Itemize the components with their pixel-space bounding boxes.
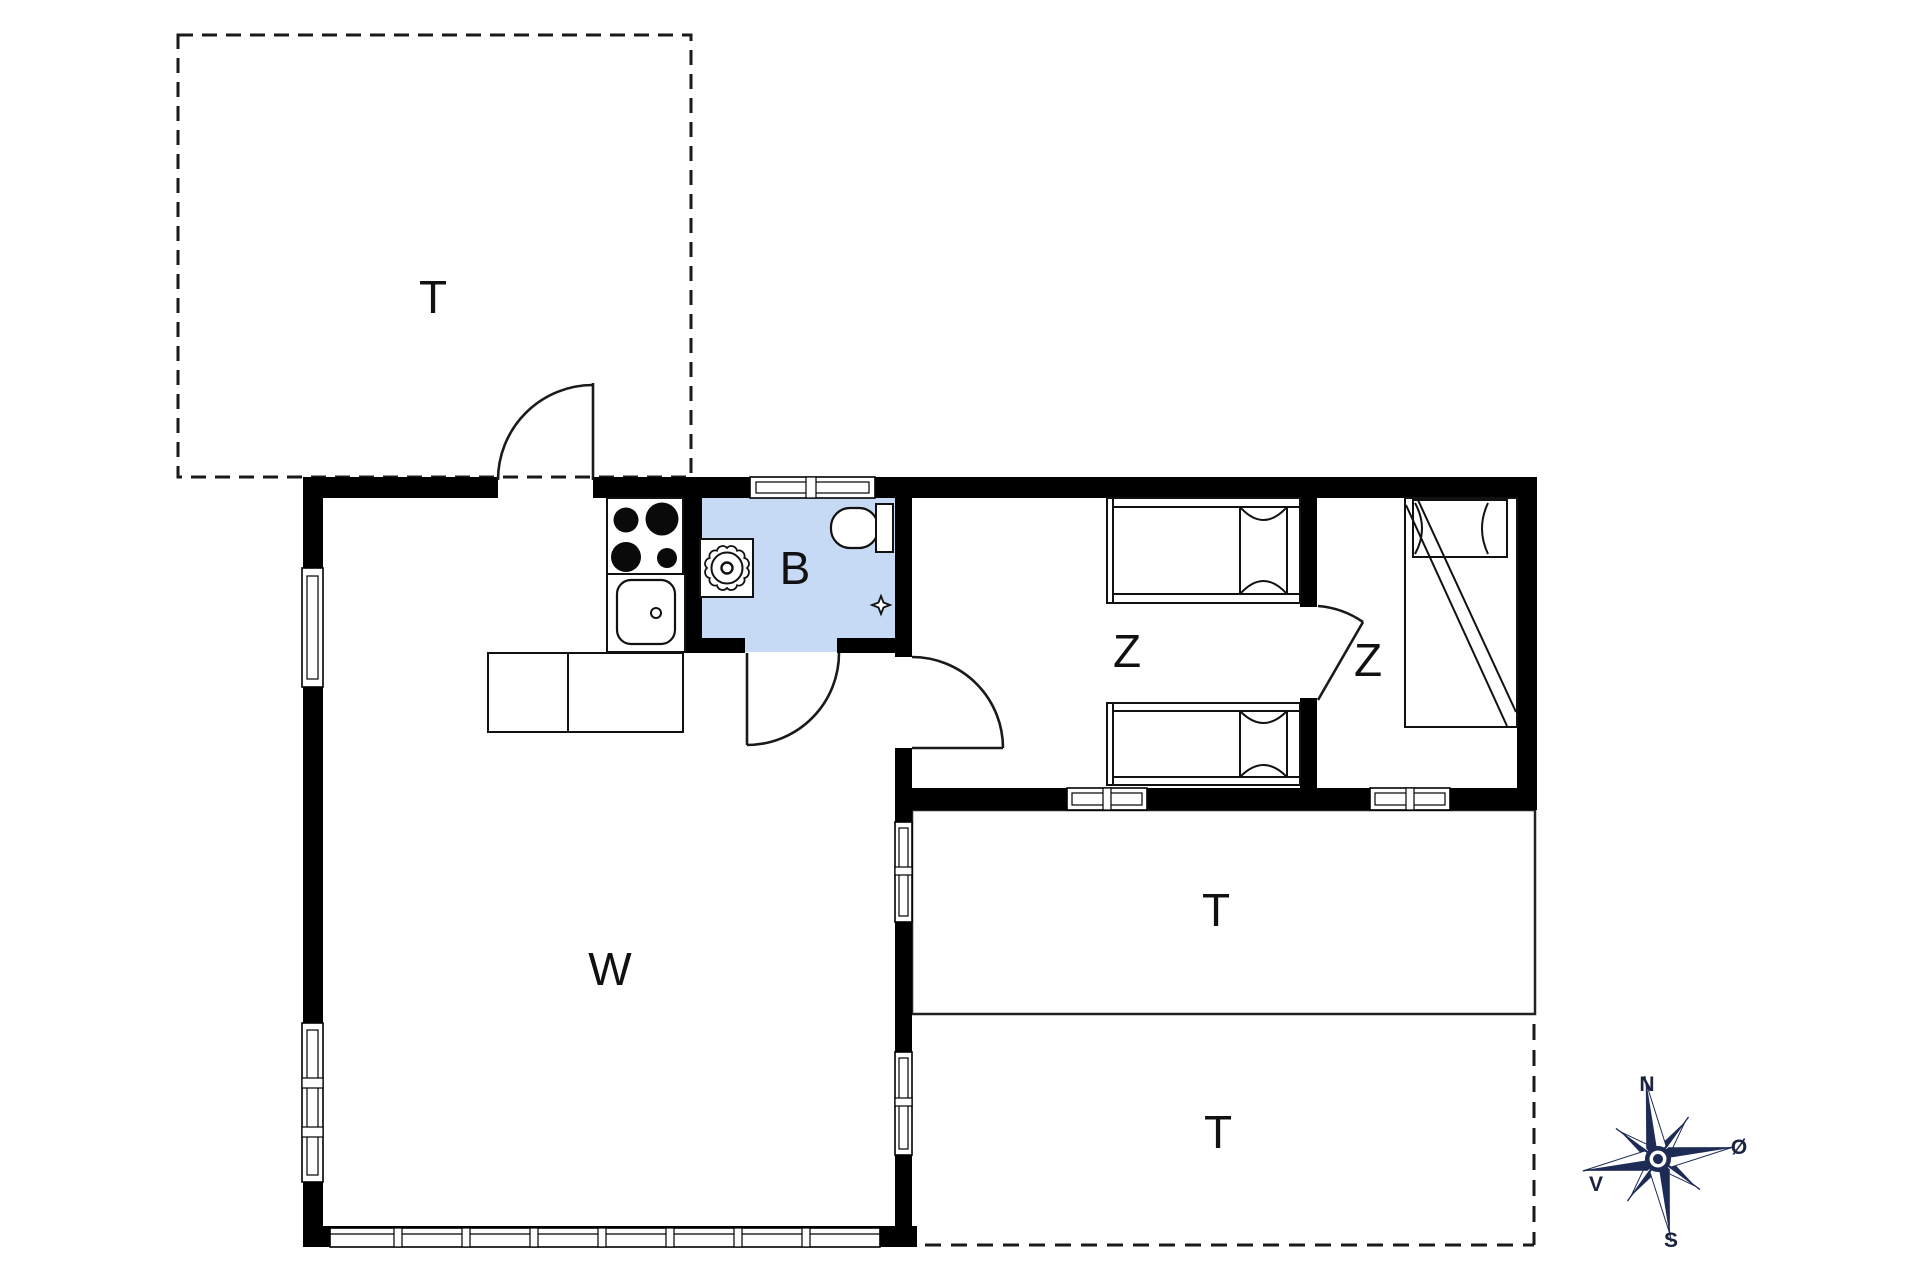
- east-wall-mid: [895, 748, 912, 788]
- north-wall-right: [593, 477, 1537, 498]
- burner-icon: [646, 503, 679, 536]
- kitchen-sink-basin: [617, 580, 675, 644]
- bedroom1-door-arc: [912, 657, 1003, 748]
- kitchen: [488, 498, 685, 732]
- bedroom1-door: [912, 657, 1003, 748]
- bathroom-door: [747, 653, 839, 745]
- bedroom-divider-wall-lower: [1300, 698, 1317, 788]
- bedroom-divider-wall-upper: [1300, 498, 1317, 607]
- compass-south-label: S: [1664, 1229, 1678, 1252]
- compass-rose: N Ø S V: [1570, 1064, 1747, 1254]
- compass-east-label: Ø: [1731, 1136, 1747, 1159]
- burner-icon: [614, 508, 639, 533]
- kitchen-counter: [488, 653, 683, 732]
- room-label-bathroom: B: [780, 542, 811, 594]
- bed-single: [1107, 498, 1300, 603]
- compass-north-label: N: [1639, 1073, 1654, 1096]
- toilet-tank: [876, 504, 893, 552]
- bathroom-south-wall-left: [683, 638, 745, 653]
- bed-single: [1107, 703, 1300, 785]
- east-window-upper: [895, 822, 912, 922]
- room-label-bedroom1: Z: [1113, 625, 1141, 677]
- burner-icon: [657, 548, 677, 568]
- bedroom2-door-arc: [1318, 606, 1363, 622]
- compass-west-label: V: [1589, 1173, 1603, 1196]
- terrace-northwest-outline: [178, 35, 691, 477]
- room-label-bedroom2: Z: [1354, 634, 1382, 686]
- burner-icon: [611, 542, 641, 572]
- south-window-band: [330, 1228, 880, 1247]
- east-wall-upper: [895, 498, 912, 657]
- west-window-lower: [302, 1023, 323, 1182]
- bedroom2-window: [1370, 788, 1450, 810]
- west-window-upper: [302, 568, 323, 687]
- room-label-terrace-middle: T: [1202, 884, 1230, 936]
- bunk-bed: [1405, 498, 1517, 727]
- room-label-terrace-south: T: [1204, 1106, 1232, 1158]
- east-window-lower: [895, 1052, 912, 1155]
- entry-door-arc: [498, 385, 593, 480]
- bathroom-door-arc: [747, 653, 839, 745]
- east-outer-wall: [1517, 477, 1537, 810]
- bedroom1-window: [1067, 788, 1147, 810]
- entry-door: [498, 383, 593, 480]
- north-wall-left: [303, 477, 498, 498]
- bathroom-window: [750, 477, 875, 498]
- toilet-bowl: [831, 508, 878, 548]
- room-label-living-room: W: [588, 943, 632, 995]
- room-label-terrace-nw: T: [419, 271, 447, 323]
- floor-plan: T B Z Z T T W: [0, 0, 1920, 1280]
- kitchen-sink-drain: [651, 608, 661, 618]
- bathroom-sink-drain: [722, 563, 733, 574]
- bathroom-south-wall-right: [837, 638, 895, 653]
